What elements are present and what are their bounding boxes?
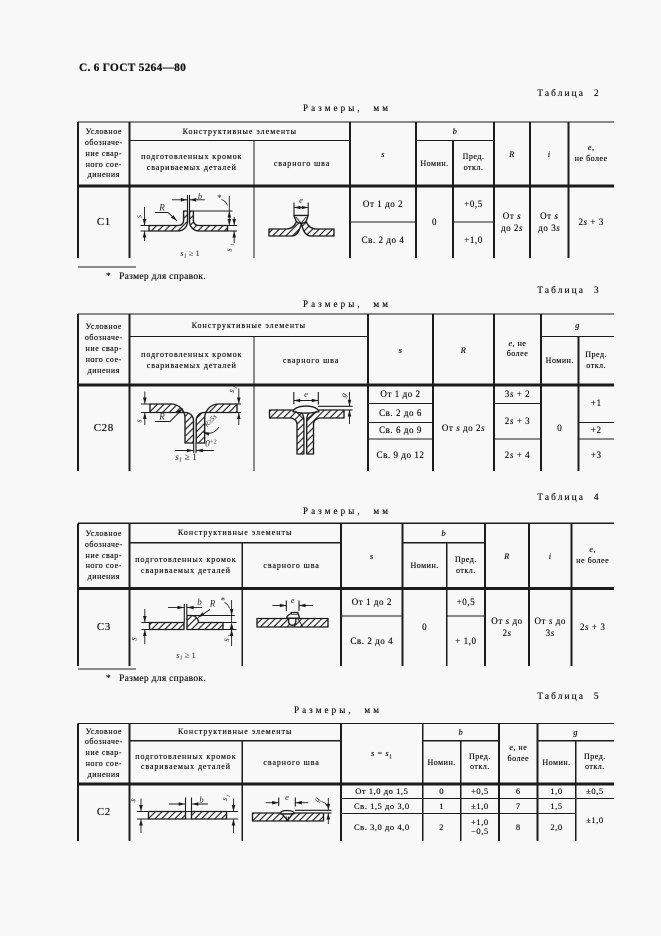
svg-text:*: * — [220, 596, 225, 606]
svg-text:g: g — [339, 391, 349, 398]
svg-text:R: R — [209, 599, 216, 609]
svg-text:s1 ≥ 1: s1 ≥ 1 — [175, 453, 197, 464]
svg-text:s: s — [224, 248, 234, 252]
svg-text:s1 ≥ 1: s1 ≥ 1 — [180, 248, 199, 260]
svg-text:s: s — [129, 637, 139, 641]
svg-text:0+2: 0+2 — [205, 439, 216, 449]
svg-text:1: 1 — [226, 794, 233, 799]
svg-text:s: s — [134, 214, 144, 218]
svg-text:R: R — [158, 412, 165, 422]
svg-text:s: s — [134, 419, 144, 423]
svg-text:1: 1 — [230, 243, 236, 246]
svg-text:1: 1 — [228, 634, 234, 637]
svg-text:s1 ≥ 1: s1 ≥ 1 — [176, 650, 195, 662]
svg-text:*: * — [217, 193, 222, 203]
svg-text:е: е — [291, 595, 295, 605]
svg-text:b: b — [198, 191, 202, 201]
svg-text:s: s — [221, 638, 231, 642]
svg-text:е: е — [285, 792, 289, 802]
svg-text:е: е — [299, 195, 303, 205]
svg-text:g: g — [312, 796, 322, 803]
svg-text:е: е — [304, 389, 308, 399]
svg-text:b: b — [199, 795, 203, 805]
svg-text:b: b — [197, 597, 202, 607]
svg-text:R: R — [158, 203, 165, 213]
